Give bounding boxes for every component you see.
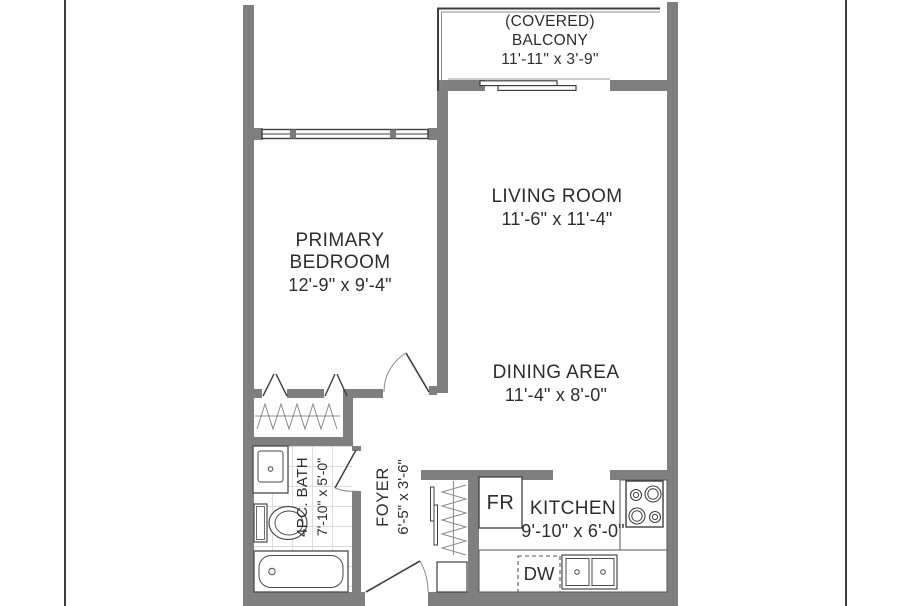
balcony-line1: (COVERED) xyxy=(450,12,650,31)
bedroom-door xyxy=(384,353,429,392)
foyer-closet-doors xyxy=(431,487,438,545)
living-room-dims: 11'-6" x 11'-4" xyxy=(457,208,657,230)
primary-bedroom-label: PRIMARY BEDROOM 12'-9" x 9'-4" xyxy=(240,230,440,296)
plan-linework xyxy=(0,0,910,606)
balcony-label: (COVERED) BALCONY 11'-11" x 3'-9" xyxy=(450,12,650,69)
bedroom-line2: BEDROOM xyxy=(240,252,440,274)
foyer-dims: 6'-5" x 3'-6" xyxy=(394,432,413,562)
bedroom-dims: 12'-9" x 9'-4" xyxy=(240,274,440,296)
entry-door xyxy=(366,561,428,592)
fridge-label: FR xyxy=(479,478,522,528)
kitchen-sink xyxy=(562,555,617,589)
foyer-label: FOYER 6'-5" x 3'-6" xyxy=(373,432,413,562)
closet-rod-hangers xyxy=(255,404,340,429)
bath-dims: 7'-10" x 5'-0" xyxy=(313,437,332,557)
foyer-name: FOYER xyxy=(373,432,394,562)
foyer-closet xyxy=(442,481,466,555)
balcony-line2: BALCONY xyxy=(450,31,650,50)
bedroom-line1: PRIMARY xyxy=(240,230,440,252)
bedroom-window xyxy=(262,130,428,139)
vanity-sink xyxy=(253,446,288,493)
dining-dims: 11'-4" x 8'-0" xyxy=(456,384,656,406)
foyer-shelf xyxy=(437,562,467,592)
bath-name: 4PC. BATH xyxy=(293,437,313,557)
bifold-door-right xyxy=(325,374,347,396)
living-room-label: LIVING ROOM 11'-6" x 11'-4" xyxy=(457,186,657,230)
dining-area-label: DINING AREA 11'-4" x 8'-0" xyxy=(456,362,656,406)
dishwasher-label: DW xyxy=(518,556,560,592)
living-room-name: LIVING ROOM xyxy=(457,186,657,208)
floor-plan: (COVERED) BALCONY 11'-11" x 3'-9" LIVING… xyxy=(0,0,910,606)
bathtub xyxy=(254,551,348,592)
dining-name: DINING AREA xyxy=(456,362,656,384)
balcony-dims: 11'-11" x 3'-9" xyxy=(450,50,650,69)
sliding-door xyxy=(480,81,576,91)
bifold-door-left xyxy=(263,374,287,396)
bathroom-door xyxy=(335,450,356,491)
bath-label: 4PC. BATH 7'-10" x 5'-0" xyxy=(293,437,333,557)
